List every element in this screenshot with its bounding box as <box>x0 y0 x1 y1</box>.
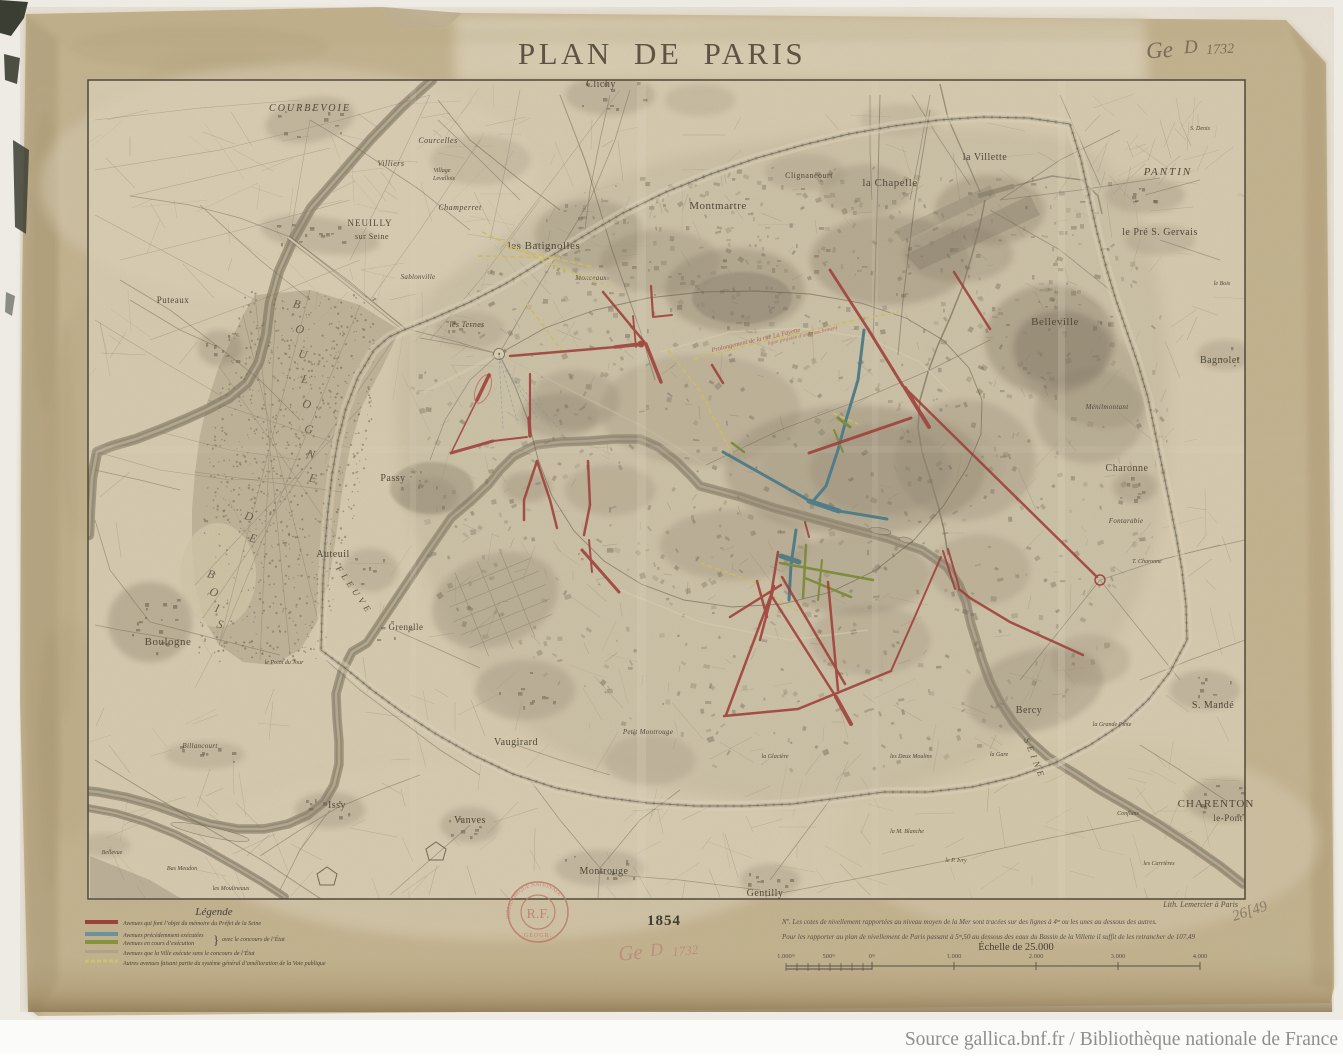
svg-text:Source gallica.bnf.fr / Biblio: Source gallica.bnf.fr / Bibliothèque nat… <box>905 1029 1338 1050</box>
